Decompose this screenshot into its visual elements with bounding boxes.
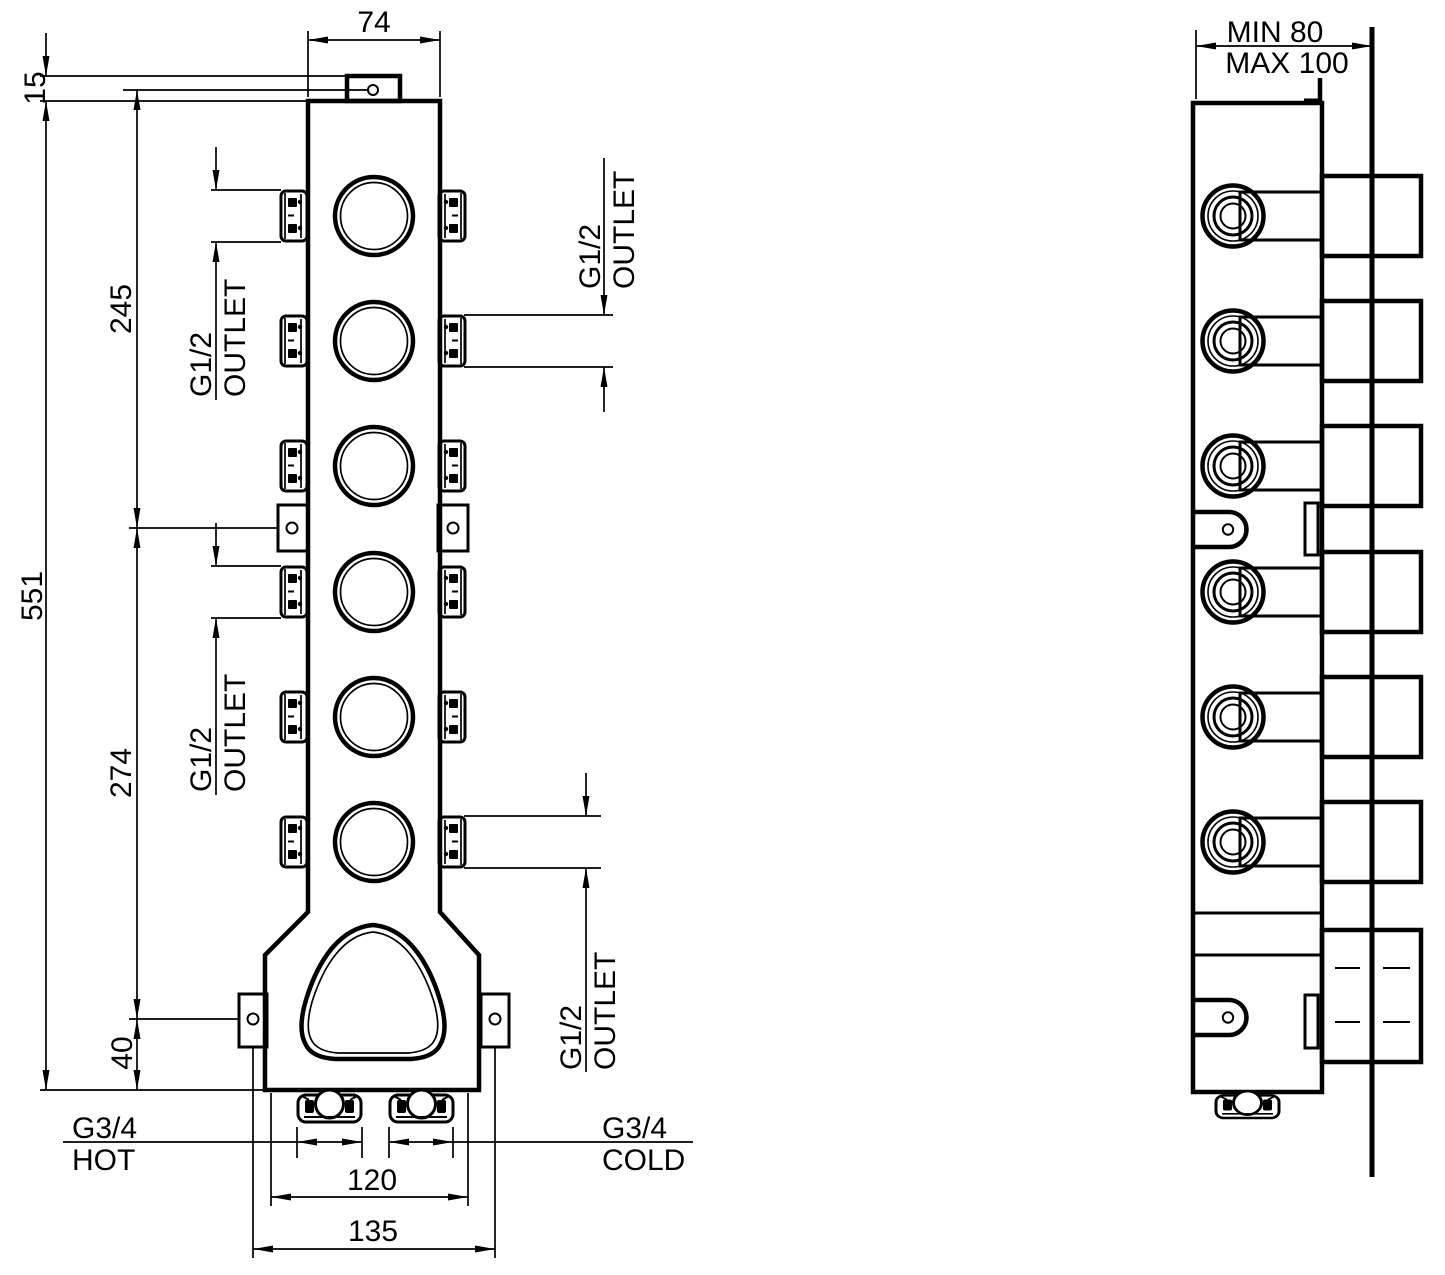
front-view-dimensions: 74 15 551 245 274 40 G1/2 OUTLET (16, 6, 693, 1258)
port-opening-4 (335, 553, 413, 631)
side-nut-2 (1203, 311, 1264, 372)
outlet-fitting-right-4 (439, 567, 465, 617)
mid-tab-right-hole (448, 523, 459, 534)
outlet-fitting-right-2 (439, 316, 465, 366)
outlet-fitting-right-3 (439, 441, 465, 491)
port-opening-2 (335, 302, 413, 380)
outlet-fitting-left-4 (281, 567, 307, 617)
mid-tab-wall-plate (1305, 503, 1318, 555)
dim-120-label: 120 (347, 1164, 397, 1197)
front-view (239, 76, 509, 1122)
port-opening-6 (335, 803, 413, 881)
side-nut-5 (1203, 687, 1264, 748)
top-tab-hole (368, 85, 378, 95)
outlet-lr-word: OUTLET (589, 952, 622, 1070)
outlet-fitting-right-5 (439, 692, 465, 742)
depth-max-label: MAX 100 (1225, 47, 1348, 80)
base-tab-wall-plate (1305, 995, 1318, 1048)
dim-245-label: 245 (105, 284, 138, 334)
outlet-ur-word: OUTLET (608, 171, 641, 289)
cold-size-label: G3/4 (602, 1112, 667, 1145)
outlet-ur-size: G1/2 (574, 224, 607, 289)
inlet-nut-side (1216, 1091, 1279, 1118)
depth-min-label: MIN 80 (1227, 16, 1324, 49)
port-opening-5 (335, 678, 413, 756)
dim-135-label: 135 (348, 1215, 398, 1248)
outlet-fitting-left-1 (281, 191, 307, 241)
outlet-fitting-right-6 (439, 817, 465, 867)
side-nut-3 (1203, 436, 1264, 497)
outlet-ll-size: G1/2 (185, 727, 218, 792)
base-tab-side (1193, 1000, 1247, 1035)
outlet-fitting-left-5 (281, 692, 307, 742)
mid-tab-side (1193, 512, 1247, 547)
base-tab-left-hole (248, 1014, 259, 1025)
mid-tab-left-hole (287, 523, 298, 534)
valve-technical-drawing: 74 15 551 245 274 40 G1/2 OUTLET (0, 0, 1445, 1275)
outlet-ul-word: OUTLET (219, 279, 252, 397)
dim-274-label: 274 (105, 748, 138, 798)
hot-word-label: HOT (72, 1144, 135, 1177)
port-opening-3 (335, 427, 413, 505)
side-nut-4 (1203, 562, 1264, 623)
cold-inlet-nut (390, 1090, 453, 1122)
outlet-fitting-left-3 (281, 441, 307, 491)
dim-40-label: 40 (106, 1036, 139, 1069)
outlet-ll-word: OUTLET (219, 674, 252, 792)
side-view: MIN 80 MAX 100 (1193, 16, 1421, 1177)
outlet-fitting-left-6 (281, 817, 307, 867)
hot-inlet-nut (298, 1090, 361, 1122)
outlet-ul-size: G1/2 (185, 332, 218, 397)
dim-15-label: 15 (19, 71, 52, 104)
dim-74-label: 74 (357, 6, 390, 39)
base-tab-right (481, 994, 509, 1047)
hot-size-label: G3/4 (72, 1112, 137, 1145)
base-opening-outer (302, 925, 445, 1059)
outlet-fitting-right-1 (439, 191, 465, 241)
outlet-lr-size: G1/2 (555, 1005, 588, 1070)
side-nut-6 (1203, 812, 1264, 873)
top-tab (347, 76, 400, 101)
mid-tab-right (438, 505, 468, 551)
dim-551-label: 551 (16, 571, 49, 621)
technical-drawing-page: 74 15 551 245 274 40 G1/2 OUTLET (0, 0, 1445, 1275)
mid-tab-left (278, 505, 308, 551)
side-nut-1 (1203, 186, 1264, 247)
port-opening-1 (335, 177, 413, 255)
base-tab-right-hole (490, 1014, 501, 1025)
cold-word-label: COLD (602, 1144, 685, 1177)
outlet-fitting-left-2 (281, 316, 307, 366)
